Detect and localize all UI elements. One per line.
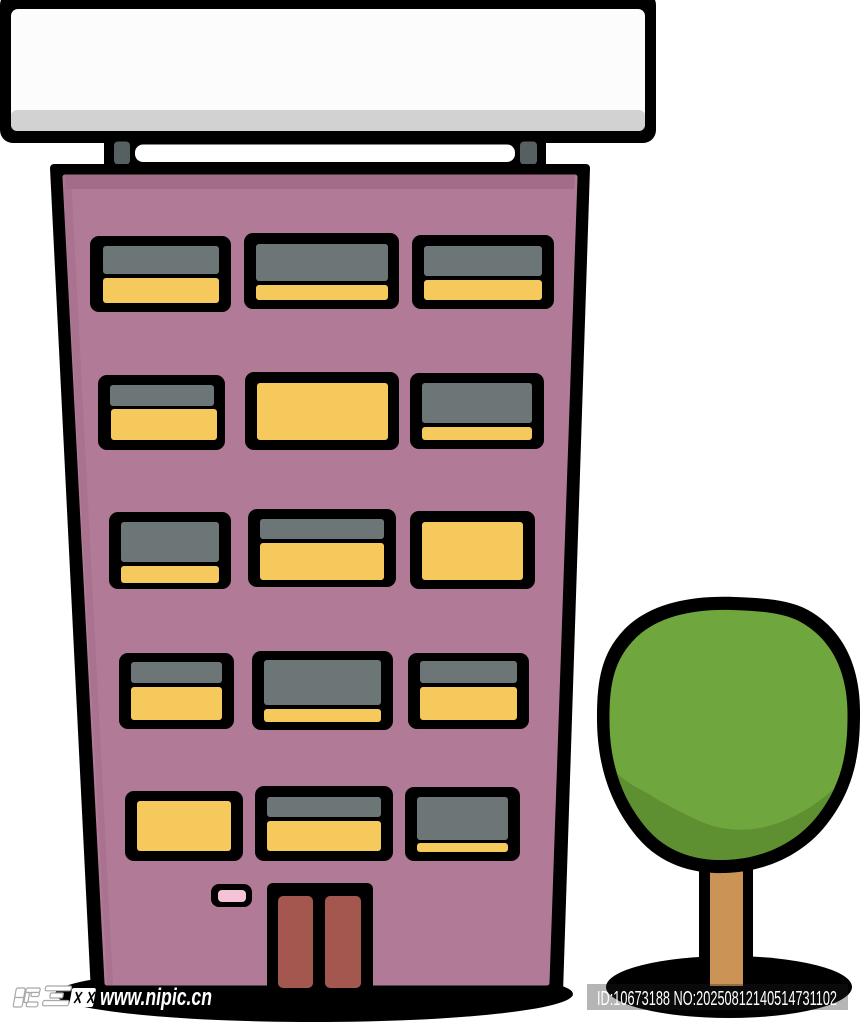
svg-text:www.nipic.cn: www.nipic.cn [100,984,212,1011]
svg-text:ID:10673188 NO:202508121405147: ID:10673188 NO:20250812140514731102 [597,987,837,1010]
